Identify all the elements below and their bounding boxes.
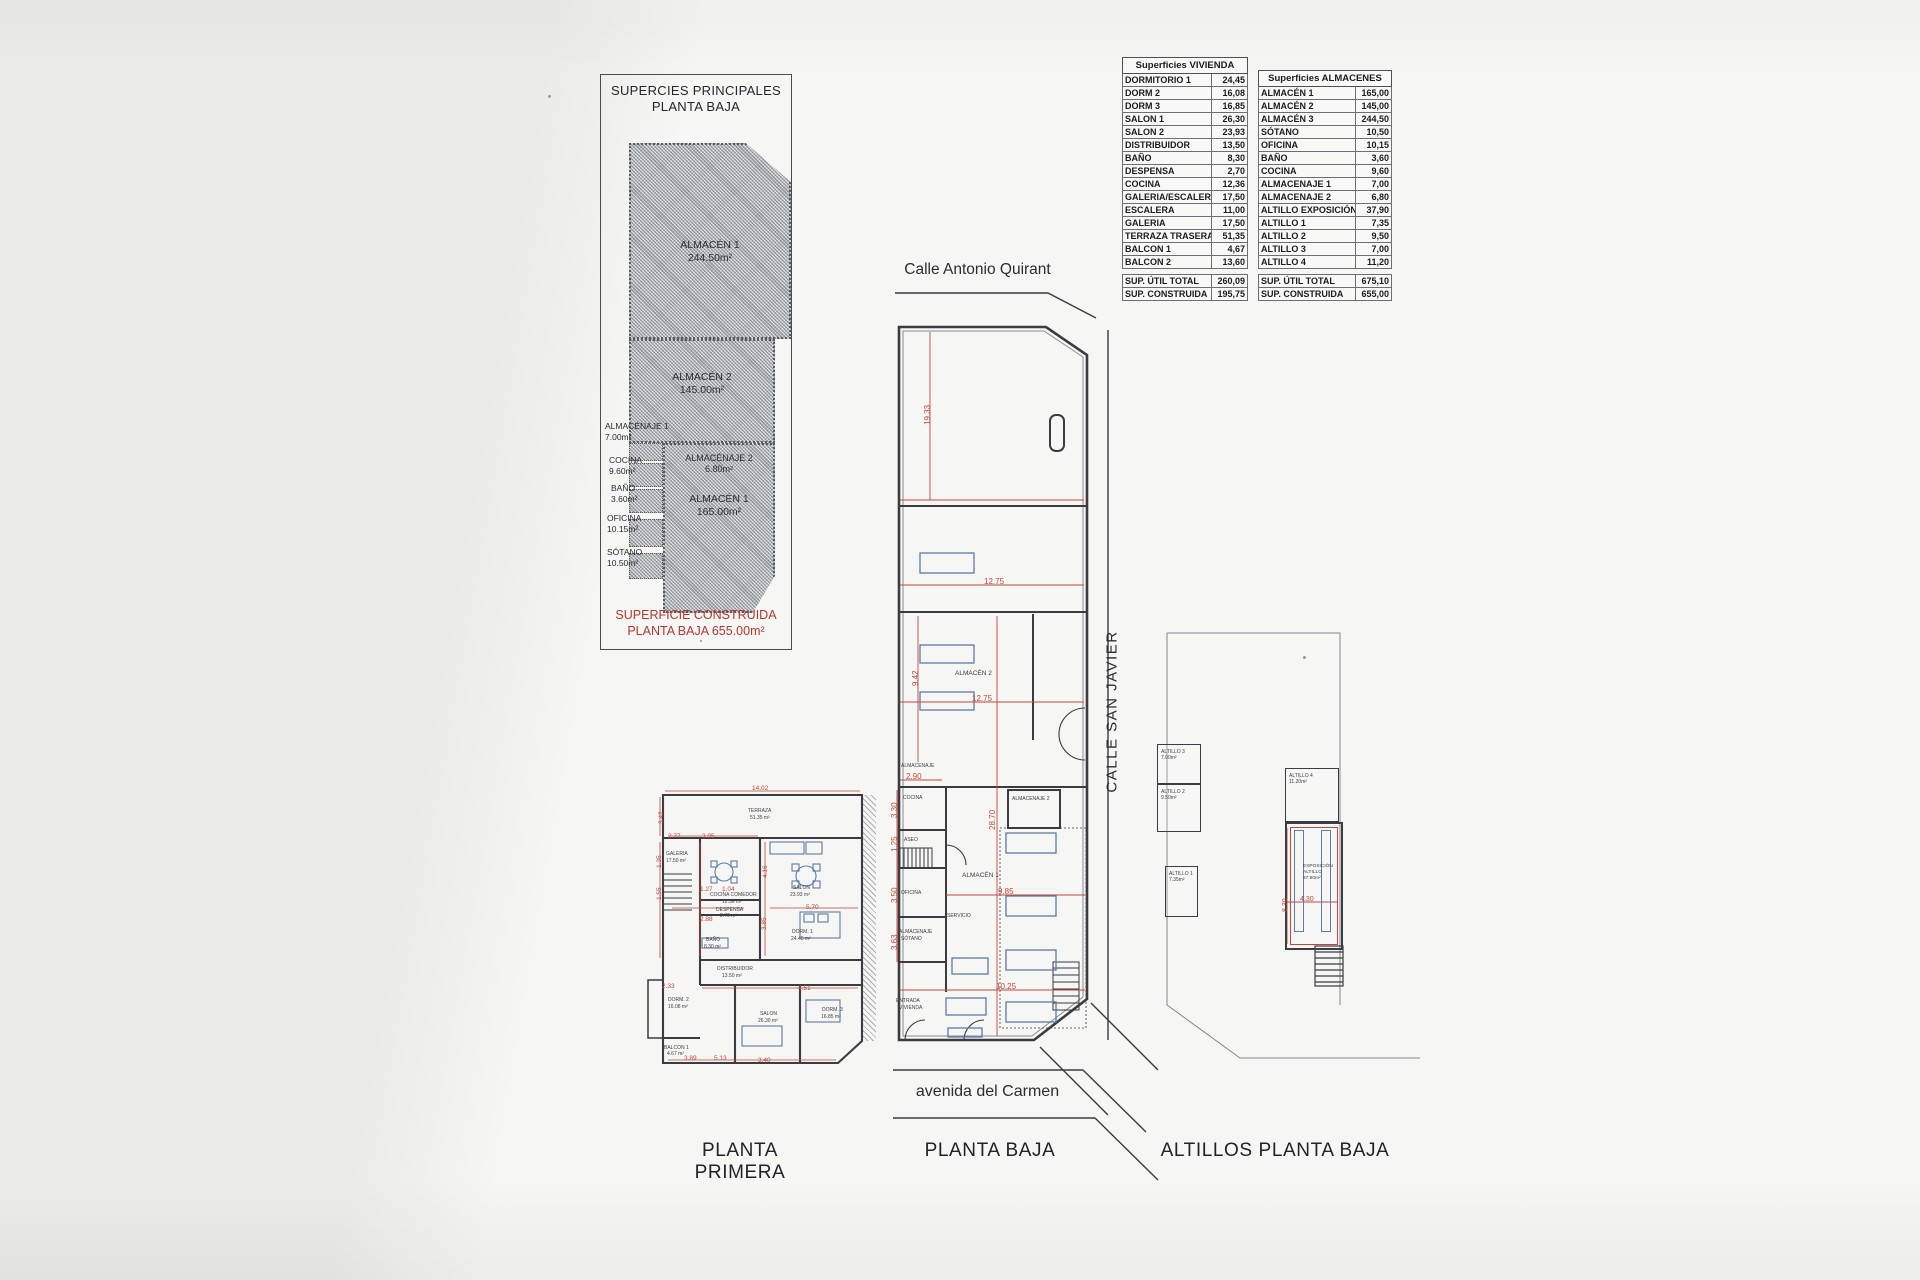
side-room-label: OFICINA 10.15m² bbox=[607, 513, 685, 535]
table-row: TERRAZA TRASERA 51,35 bbox=[1122, 230, 1248, 243]
dimension-label: 3.89 bbox=[684, 1056, 697, 1063]
planta-baja-rack-zone bbox=[1000, 828, 1086, 1028]
dimension-label: 14.02 bbox=[752, 786, 768, 793]
side-room-label: COCINA 9.60m² bbox=[609, 455, 687, 477]
table-row: ALTILLO 4 11,20 bbox=[1258, 256, 1392, 269]
scan-speck bbox=[1303, 656, 1306, 659]
room-label: SALON bbox=[760, 1012, 777, 1017]
room-label: DISTRIBUIDOR bbox=[717, 967, 753, 972]
dimension-label: 4.51 bbox=[798, 986, 811, 993]
altillos-stairs bbox=[1315, 946, 1343, 986]
side-room-label: ALMACÉNAJE 1 7.00m² bbox=[605, 421, 683, 443]
dimension-label: 3.42 bbox=[659, 811, 666, 824]
almacen2-area: 145.00m² bbox=[629, 384, 775, 397]
vivienda-table-totals: SUP. ÚTIL TOTAL 260,09 SUP. CONSTRUIDA 1… bbox=[1122, 274, 1248, 301]
dimension-label: 28.70 bbox=[989, 810, 997, 830]
table-row: BAÑO 8,30 bbox=[1122, 152, 1248, 165]
room-label: ALMACENAJE bbox=[899, 930, 932, 935]
table-row: BALCON 1 4,67 bbox=[1122, 243, 1248, 256]
almacen1-top-name: ALMACÉN 1 bbox=[629, 239, 791, 252]
table-row: DISTRIBUIDOR 13,50 bbox=[1122, 139, 1248, 152]
table-row: ESCALERA 11,00 bbox=[1122, 204, 1248, 217]
table-superficies-vivienda: Superficies VIVIENDA DORMITORIO 1 24,45 … bbox=[1122, 57, 1248, 301]
room-label: 2.70 m² bbox=[720, 914, 737, 919]
scan-speck bbox=[700, 640, 702, 642]
almacenes-table-title: Superficies ALMACENES bbox=[1258, 70, 1392, 87]
table-row: BAÑO 3,60 bbox=[1258, 152, 1392, 165]
room-label: COCINA COMEDOR bbox=[710, 893, 757, 898]
dimension-label: 10.25 bbox=[996, 983, 1016, 991]
table-row: ALMACÉN 2 145,00 bbox=[1258, 100, 1392, 113]
room-label: 23.93 m² bbox=[790, 893, 810, 898]
room-label: DORM. 3 bbox=[822, 1008, 843, 1013]
table-row: SÓTANO 10,50 bbox=[1258, 126, 1392, 139]
vivienda-table-title: Superficies VIVIENDA bbox=[1122, 57, 1248, 74]
table-superficies-almacenes: Superficies ALMACENES ALMACÉN 1 165,00 A… bbox=[1258, 70, 1392, 301]
summary-title-line2: PLANTA BAJA bbox=[601, 99, 791, 115]
table-row: ALMACÉN 3 244,50 bbox=[1258, 113, 1392, 126]
room-label: 8.30 m² bbox=[704, 945, 721, 950]
dimension-label: 4.16 bbox=[763, 865, 770, 878]
summary-title: SUPERCIES PRINCIPALES PLANTA BAJA bbox=[601, 83, 791, 115]
caption-planta-baja: PLANTA BAJA bbox=[915, 1140, 1065, 1162]
dimension-label: 1.04 bbox=[722, 887, 735, 894]
street-label-calle-antonio-quirant: Calle Antonio Quirant bbox=[895, 261, 1060, 279]
dimension-label: 5.13 bbox=[714, 1056, 727, 1063]
table-row: ALMACENAJE 1 7,00 bbox=[1258, 178, 1392, 191]
planta-baja-partitions bbox=[899, 415, 1087, 992]
room-label: ALMACENAJE 2 bbox=[1012, 797, 1050, 802]
room-label: 26.30 m² bbox=[758, 1019, 778, 1024]
table-total-row: SUP. ÚTIL TOTAL 260,09 bbox=[1122, 275, 1248, 288]
room-label: DORM. 1 bbox=[792, 930, 813, 935]
dimension-label: 9.42 bbox=[912, 670, 920, 686]
room-label: SERVICIO bbox=[947, 914, 971, 919]
table-row: BALCON 2 13,60 bbox=[1122, 256, 1248, 269]
dimension-label: 1.25 bbox=[891, 836, 899, 852]
table-row: DORM 2 16,08 bbox=[1122, 87, 1248, 100]
table-row: ALTILLO 3 7,00 bbox=[1258, 243, 1392, 256]
room-label: 17.50 m² bbox=[666, 859, 686, 864]
altillo-box: ALTILLO 3 7.00m² bbox=[1157, 744, 1201, 784]
room-label: OFICINA bbox=[901, 891, 921, 896]
scan-speck bbox=[548, 95, 551, 98]
room-label: DORM. 2 bbox=[668, 998, 689, 1003]
room-label: 24.45 m² bbox=[791, 937, 811, 942]
dimension-label: 8.30 bbox=[1282, 898, 1289, 912]
room-label: ALMACENAJE bbox=[901, 764, 934, 769]
table-row: ALMACÉN 1 165,00 bbox=[1258, 87, 1392, 100]
table-row: ALTILLO EXPOSICIÓN 37,90 bbox=[1258, 204, 1392, 217]
table-row: DORMITORIO 1 24,45 bbox=[1122, 74, 1248, 87]
room-label: 16.08 m² bbox=[668, 1005, 688, 1010]
almacen1-top-area: 244.50m² bbox=[629, 252, 791, 265]
table-row: ALTILLO 2 9,50 bbox=[1258, 230, 1392, 243]
room-label: 16.85 m² bbox=[821, 1015, 841, 1020]
dimension-label: 12.75 bbox=[972, 695, 992, 703]
table-row: ALTILLO 1 7,35 bbox=[1258, 217, 1392, 230]
dimension-label: 4.30 bbox=[1300, 896, 1314, 903]
caption-altillos-planta-baja: ALTILLOS PLANTA BAJA bbox=[1155, 1140, 1395, 1162]
room-label: VIVIENDA bbox=[899, 1006, 922, 1011]
altillo-box: ALTILLO 1 7.35m² bbox=[1165, 866, 1198, 917]
table-total-row: SUP. CONSTRUIDA 195,75 bbox=[1122, 288, 1248, 301]
table-total-row: SUP. CONSTRUIDA 655,00 bbox=[1258, 288, 1392, 301]
room-label: ALMACÉN 2 bbox=[955, 671, 992, 678]
vivienda-table-rows: DORMITORIO 1 24,45 DORM 2 16,08 DORM 3 1… bbox=[1122, 74, 1248, 269]
dimension-label: 2.90 bbox=[906, 773, 922, 781]
room-label: SÓTANO bbox=[901, 937, 922, 942]
dimension-label: 3.50 bbox=[891, 887, 899, 903]
room-label: ALMACÉN 1 bbox=[962, 873, 999, 880]
almacenes-table-rows: ALMACÉN 1 165,00 ALMACÉN 2 145,00 ALMACÉ… bbox=[1258, 87, 1392, 269]
street-label-calle-san-javier: CALLE SAN JAVIER bbox=[1104, 592, 1121, 832]
scanned-floor-plan-sheet: SUPERCIES PRINCIPALES PLANTA BAJA ALMACÉ… bbox=[0, 0, 1920, 1280]
room-label: SALON bbox=[793, 886, 810, 891]
almacenes-table-totals: SUP. ÚTIL TOTAL 675,10 SUP. CONSTRUIDA 6… bbox=[1258, 274, 1392, 301]
planta-primera-stairs bbox=[664, 874, 692, 910]
side-room-label: BAÑO 3.60m² bbox=[611, 483, 689, 505]
room-label: TERRAZA bbox=[748, 809, 771, 814]
dimension-label: 1.27 bbox=[700, 887, 713, 894]
exposicion-label: EXPOSICIÓN ALTILLO 37.90m² bbox=[1303, 864, 1333, 882]
dimension-label: 3.40 bbox=[758, 1058, 771, 1065]
table-row: SALON 2 23,93 bbox=[1122, 126, 1248, 139]
summary-diagram-box: SUPERCIES PRINCIPALES PLANTA BAJA ALMACÉ… bbox=[600, 74, 792, 650]
table-row: DESPENSA 2,70 bbox=[1122, 165, 1248, 178]
room-label: COCINA bbox=[903, 796, 922, 801]
dimension-label: 3.63 bbox=[891, 934, 899, 950]
room-label: ASEO bbox=[904, 838, 918, 843]
table-row: GALERIA/ESCALERA 17,50 bbox=[1122, 191, 1248, 204]
dimension-label: 3.85 bbox=[762, 917, 769, 930]
room-label: ENTRADA bbox=[896, 999, 920, 1004]
dimension-label: 3.95 bbox=[702, 834, 715, 841]
dimension-label: 1.55 bbox=[657, 887, 664, 900]
table-row: GALERIA 17,50 bbox=[1122, 217, 1248, 230]
dimension-label: 9.85 bbox=[998, 888, 1014, 896]
dimension-label: 3.30 bbox=[891, 802, 899, 818]
room-label: GALERIA bbox=[666, 852, 688, 857]
dimension-label: 2.77 bbox=[668, 834, 681, 841]
superficie-construida-note: SUPERFICIE CONSTRUIDA PLANTA BAJA 655.00… bbox=[601, 607, 791, 639]
table-row: COCINA 9,60 bbox=[1258, 165, 1392, 178]
almacen2-name: ALMACÉN 2 bbox=[629, 371, 775, 384]
room-label: BAÑO bbox=[706, 938, 720, 943]
planta-baja-racks bbox=[920, 553, 1056, 1037]
dimension-label: 2.88 bbox=[700, 917, 713, 924]
table-total-row: SUP. ÚTIL TOTAL 675,10 bbox=[1258, 275, 1392, 288]
table-row: OFICINA 10,15 bbox=[1258, 139, 1392, 152]
exposicion-altillo-room: EXPOSICIÓN ALTILLO 37.90m² bbox=[1285, 822, 1343, 950]
dimension-label: 2.33 bbox=[662, 984, 675, 991]
altillo-box: ALTILLO 4 11.20m² bbox=[1285, 768, 1339, 822]
table-row: SALON 1 26,30 bbox=[1122, 113, 1248, 126]
side-room-label: SÓTANO 10.50m² bbox=[607, 547, 685, 569]
party-wall-hatch bbox=[863, 795, 876, 1041]
shaded-almacen1-top: ALMACÉN 1 244.50m² bbox=[629, 143, 791, 339]
summary-title-line1: SUPERCIES PRINCIPALES bbox=[601, 83, 791, 99]
room-label: 12.36 m² bbox=[722, 900, 742, 905]
room-label: 51.35 m² bbox=[750, 816, 770, 821]
table-row: DORM 3 16,85 bbox=[1122, 100, 1248, 113]
street-label-avenida-del-carmen: avenida del Carmen bbox=[905, 1083, 1070, 1101]
table-row: COCINA 12,36 bbox=[1122, 178, 1248, 191]
room-label: 13.50 m² bbox=[722, 974, 742, 979]
dimension-label: 12.75 bbox=[984, 578, 1004, 586]
dimension-label: 1.35 bbox=[657, 855, 664, 868]
caption-planta-primera: PLANTA PRIMERA bbox=[660, 1140, 820, 1184]
dimension-label: 19.33 bbox=[924, 405, 932, 425]
dimension-label: 5.70 bbox=[806, 905, 819, 912]
table-row: ALMACENAJE 2 6,80 bbox=[1258, 191, 1392, 204]
altillo-box: ALTILLO 2 9.50m² bbox=[1157, 784, 1201, 832]
room-label: 4.67 m² bbox=[667, 1052, 684, 1057]
